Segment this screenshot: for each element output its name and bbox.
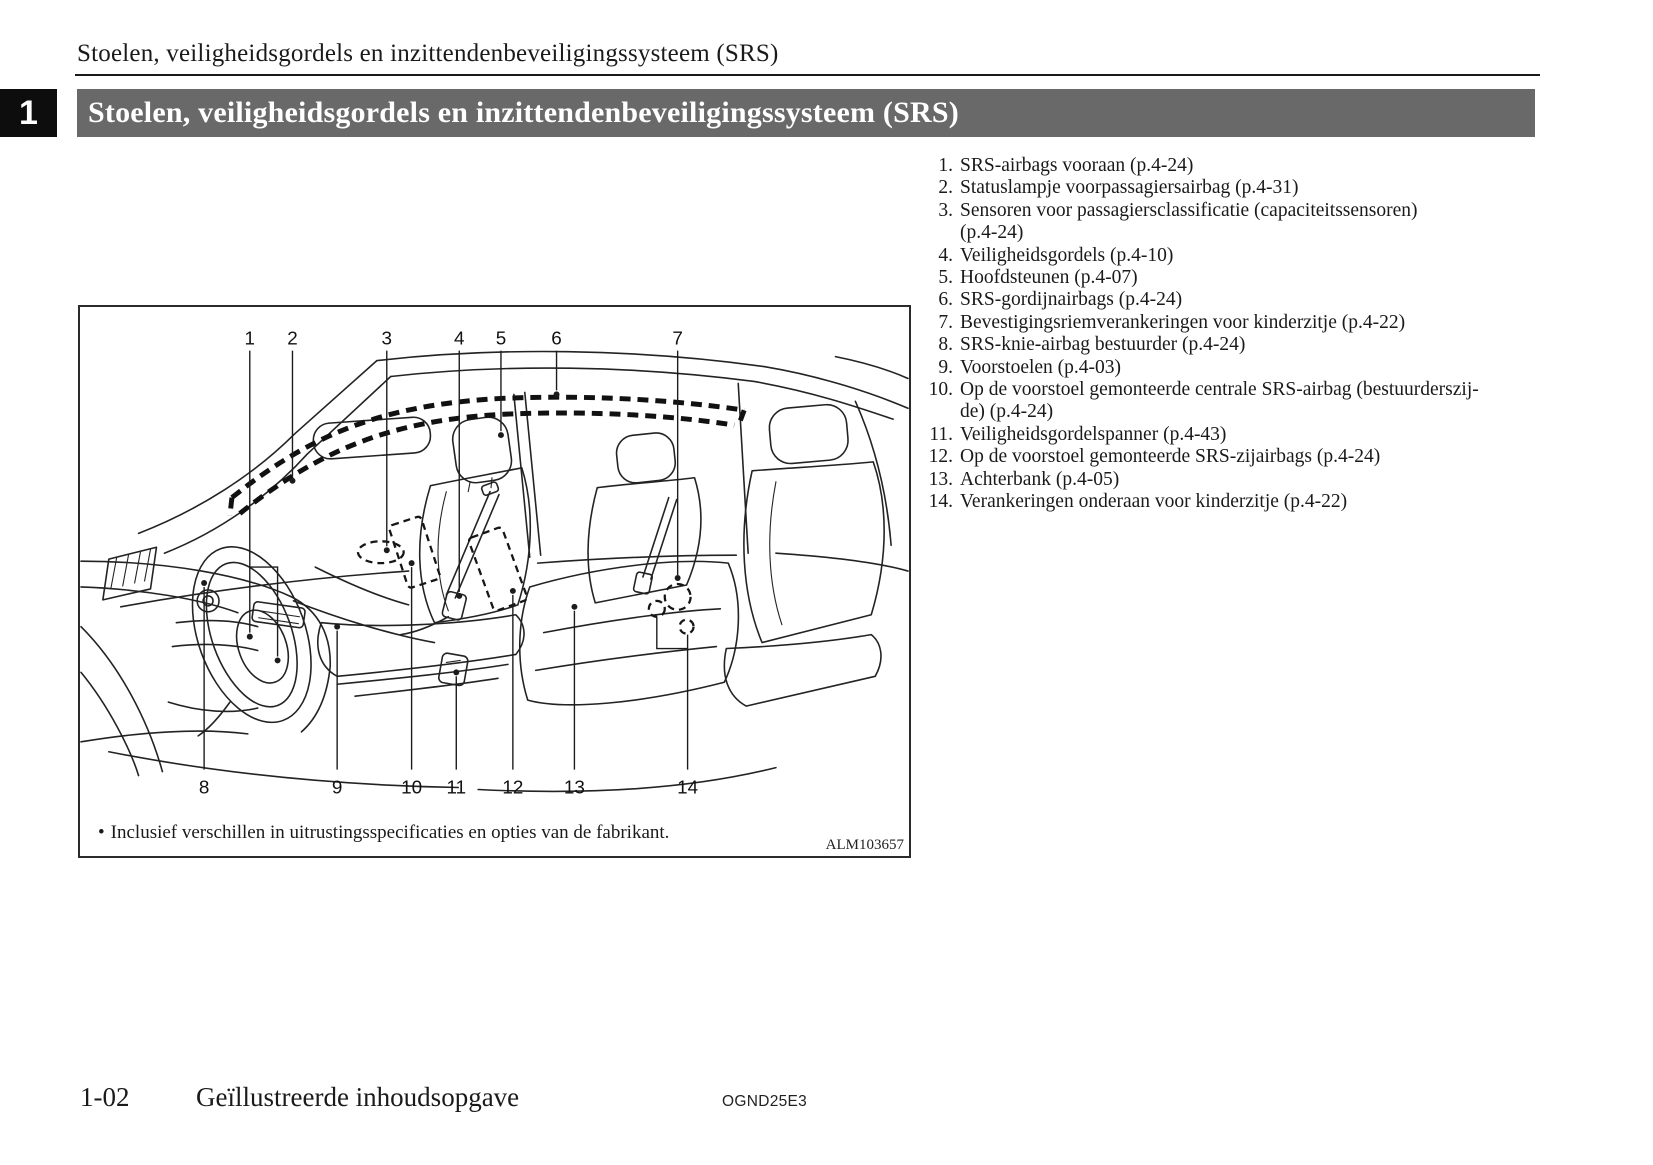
legend-item-1: 1. SRS-airbags vooraan (p.4-24) <box>928 155 1568 177</box>
legend-list: 1. SRS-airbags vooraan (p.4-24) 2. Statu… <box>928 155 1568 514</box>
legend-item-number: 1. <box>928 155 960 177</box>
legend-item-3: 3. Sensoren voor passagiersclassificatie… <box>928 200 1568 245</box>
legend-item-number: 13. <box>928 469 960 491</box>
legend-item-text: Op de voorstoel gemonteerde centrale SRS… <box>960 379 1568 401</box>
figure-caption: •Inclusief verschillen in uitrustingsspe… <box>98 822 669 844</box>
legend-item-9: 9. Voorstoelen (p.4-03) <box>928 357 1568 379</box>
car-interior-diagram: 1 2 3 4 5 6 7 8 9 10 11 12 13 14 <box>80 307 909 856</box>
legend-item-number: 14. <box>928 491 960 513</box>
legend-item-text: Bevestigingsriemverankeringen voor kinde… <box>960 312 1568 334</box>
legend-item-12: 12. Op de voorstoel gemonteerde SRS-zija… <box>928 446 1568 468</box>
legend-item-6: 6. SRS-gordijnairbags (p.4-24) <box>928 289 1568 311</box>
legend-item-text: SRS-knie-airbag bestuurder (p.4-24) <box>960 334 1568 356</box>
callout-13: 13 <box>564 776 585 797</box>
legend-item-text: (p.4-24) <box>960 222 1568 244</box>
legend-item-number: 7. <box>928 312 960 334</box>
chapter-banner: Stoelen, veiligheidsgordels en inzittend… <box>77 89 1535 137</box>
legend-item-text: SRS-gordijnairbags (p.4-24) <box>960 289 1568 311</box>
legend-item-text: Sensoren voor passagiersclassificatie (c… <box>960 200 1568 222</box>
callout-4: 4 <box>454 328 465 349</box>
chapter-tab: 1 <box>0 89 57 137</box>
callout-14: 14 <box>677 776 698 797</box>
manual-page: Stoelen, veiligheidsgordels en inzittend… <box>0 0 1653 1165</box>
running-header: Stoelen, veiligheidsgordels en inzittend… <box>77 40 779 68</box>
callout-7: 7 <box>672 328 682 349</box>
legend-item-number: 3. <box>928 200 960 245</box>
callout-6: 6 <box>551 328 562 349</box>
callout-8: 8 <box>199 776 210 797</box>
callout-5: 5 <box>496 328 507 349</box>
legend-item-text: Achterbank (p.4-05) <box>960 469 1568 491</box>
legend-item-text: Verankeringen onderaan voor kinderzitje … <box>960 491 1568 513</box>
footer-doc-code: OGND25E3 <box>722 1093 807 1111</box>
legend-item-5: 5. Hoofdsteunen (p.4-07) <box>928 267 1568 289</box>
callout-1: 1 <box>245 328 256 349</box>
callout-11: 11 <box>446 776 466 797</box>
footer-section-title: Geïllustreerde inhoudsopgave <box>196 1082 519 1113</box>
callout-9: 9 <box>332 776 342 797</box>
legend-item-number: 12. <box>928 446 960 468</box>
legend-item-14: 14. Verankeringen onderaan voor kinderzi… <box>928 491 1568 513</box>
legend-item-text: Statuslampje voorpassagiersairbag (p.4-3… <box>960 177 1568 199</box>
callout-2: 2 <box>287 328 298 349</box>
legend-item-2: 2. Statuslampje voorpassagiersairbag (p.… <box>928 177 1568 199</box>
legend-item-text: Voorstoelen (p.4-03) <box>960 357 1568 379</box>
chapter-number: 1 <box>19 94 38 133</box>
bullet-icon: • <box>98 822 105 843</box>
legend-item-number: 8. <box>928 334 960 356</box>
legend-item-number: 4. <box>928 245 960 267</box>
figure-caption-text: Inclusief verschillen in uitrustingsspec… <box>111 822 670 843</box>
legend-item-number: 6. <box>928 289 960 311</box>
legend-item-10: 10. Op de voorstoel gemonteerde centrale… <box>928 379 1568 424</box>
legend-item-number: 10. <box>928 379 960 424</box>
legend-item-number: 5. <box>928 267 960 289</box>
figure-box: 1 2 3 4 5 6 7 8 9 10 11 12 13 14 •Inclus… <box>78 305 911 858</box>
legend-item-text: de) (p.4-24) <box>960 401 1568 423</box>
legend-item-text: Veiligheidsgordelspanner (p.4-43) <box>960 424 1568 446</box>
legend-item-text: Hoofdsteunen (p.4-07) <box>960 267 1568 289</box>
legend-item-4: 4. Veiligheidsgordels (p.4-10) <box>928 245 1568 267</box>
chapter-title: Stoelen, veiligheidsgordels en inzittend… <box>77 96 959 130</box>
header-rule <box>75 74 1540 76</box>
legend-item-number: 11. <box>928 424 960 446</box>
footer-page-number: 1-02 <box>80 1082 130 1113</box>
legend-item-11: 11. Veiligheidsgordelspanner (p.4-43) <box>928 424 1568 446</box>
legend-item-number: 9. <box>928 357 960 379</box>
legend-item-text: Op de voorstoel gemonteerde SRS-zijairba… <box>960 446 1568 468</box>
callout-3: 3 <box>382 328 393 349</box>
legend-item-13: 13. Achterbank (p.4-05) <box>928 469 1568 491</box>
legend-item-8: 8. SRS-knie-airbag bestuurder (p.4-24) <box>928 334 1568 356</box>
callout-10: 10 <box>401 776 422 797</box>
legend-item-7: 7. Bevestigingsriemverankeringen voor ki… <box>928 312 1568 334</box>
legend-item-text: SRS-airbags vooraan (p.4-24) <box>960 155 1568 177</box>
callout-12: 12 <box>502 776 523 797</box>
figure-image-code: ALM103657 <box>826 837 904 854</box>
legend-item-number: 2. <box>928 177 960 199</box>
legend-item-text: Veiligheidsgordels (p.4-10) <box>960 245 1568 267</box>
